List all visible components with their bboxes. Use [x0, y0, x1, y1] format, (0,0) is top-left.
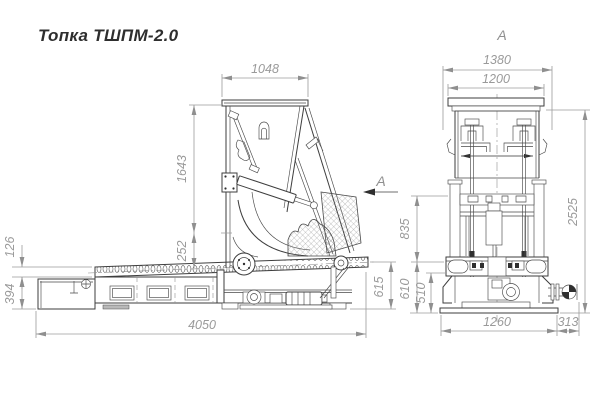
dim-hopper-top-width: 1048: [251, 62, 279, 76]
dim-base-height-outer: 610: [398, 279, 412, 300]
front-bearing-beam: [446, 257, 548, 276]
cylinder-bracket: [222, 173, 237, 192]
drawing-sheet: Топка ТШПМ-2.0: [0, 0, 600, 400]
section-arrow-a: А: [363, 173, 398, 196]
motor-cap: [322, 295, 327, 302]
section-arrow-head: [363, 189, 375, 196]
hydraulic-cylinder: [222, 173, 319, 211]
u-bracket-right: [513, 126, 535, 141]
dim-overall-height: 2525: [566, 198, 580, 227]
bearing-left: [448, 260, 468, 273]
front-lid: [448, 98, 544, 111]
ground-flange: [440, 308, 558, 313]
center-clamp: [488, 257, 506, 276]
dim-overall-width: 1380: [483, 53, 511, 67]
lever-tip: [249, 165, 259, 173]
bracket-cap-right: [517, 119, 531, 125]
dim-discharge-height: 615: [372, 277, 386, 298]
dim-chute-offset: 252: [175, 241, 189, 263]
foot-right: [330, 303, 346, 309]
front-shaft: [548, 284, 577, 300]
ash-box: [38, 279, 95, 309]
base-plate: [240, 305, 332, 309]
cylinder-body: [237, 176, 297, 203]
section-label: А: [375, 173, 385, 189]
hook-left: [447, 139, 455, 155]
dim-chain-height: 126: [3, 237, 17, 258]
gearbox-wheel: [247, 290, 261, 304]
frame-post-left: [217, 270, 224, 303]
cylinder-clevis: [488, 203, 500, 211]
dim-lid-width: 1200: [482, 72, 510, 86]
base-wheel: [503, 284, 520, 301]
dim-overall-length: 4050: [188, 318, 216, 332]
cylinder-rod: [294, 197, 312, 206]
hook-right: [539, 139, 547, 155]
technical-drawing: А 1048 1643 252 126 394: [0, 0, 600, 400]
front-base: [440, 276, 558, 313]
inspection-port: [259, 122, 269, 139]
dim-base-height-inner: 510: [414, 283, 428, 304]
dim-frame-height: 394: [3, 284, 17, 305]
base-pedestal: [462, 302, 530, 308]
center-cylinder: [486, 211, 502, 245]
foot-left: [222, 303, 238, 309]
dim-base-width: 1260: [483, 315, 511, 329]
frame-post-right: [331, 267, 336, 298]
name-plate: [103, 305, 129, 309]
front-view: А: [398, 27, 590, 336]
coupling-block: [270, 294, 282, 303]
chain-band: [95, 257, 368, 277]
conveyor-frame: [95, 277, 217, 309]
dim-mid-height: 835: [398, 219, 412, 240]
inspection-port-inner: [262, 128, 267, 139]
view-label: А: [496, 27, 506, 43]
frame-body: [95, 277, 217, 303]
handle-left: [461, 143, 490, 152]
dim-shaft-extension: 313: [558, 315, 579, 329]
bearing-right: [526, 260, 546, 273]
dim-hopper-height: 1643: [175, 155, 189, 183]
u-bracket-left: [461, 126, 483, 141]
bracket-cap-left: [465, 119, 479, 125]
handle-right: [504, 143, 533, 152]
side-view: А 1048 1643 252 126 394: [3, 62, 398, 338]
